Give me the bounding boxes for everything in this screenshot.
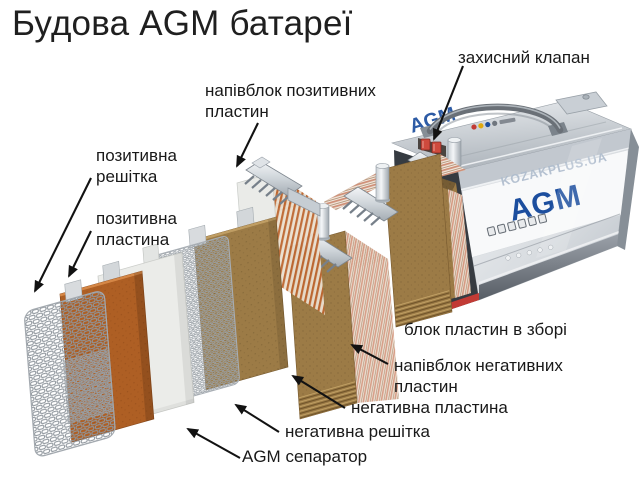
label-negative-grid: негативна решітка xyxy=(285,421,430,442)
label-positive-plate: позитивна пластина xyxy=(96,208,211,250)
label-agm-separator: AGM сепаратор xyxy=(242,446,367,467)
label-negative-halfblock: напівблок негативних пластин xyxy=(394,355,599,397)
page-title: Будова AGM батареї xyxy=(12,4,353,44)
positive-grid xyxy=(23,274,116,458)
label-positive-halfblock: напівблок позитивних пластин xyxy=(205,80,405,122)
screw-icon xyxy=(583,95,589,99)
label-positive-grid: позитивна решітка xyxy=(96,145,211,187)
arrow-negative-grid xyxy=(236,405,279,432)
label-protective-valve: захисний клапан xyxy=(458,47,590,68)
arrow-positive-grid xyxy=(35,178,91,291)
arrow-positive-halfblock xyxy=(237,123,258,166)
agm-battery-diagram: AGM KOZAKPLUS.UA AGM xyxy=(0,0,643,482)
label-assembled-block: блок пластин в зборі xyxy=(404,319,567,340)
label-negative-plate: негативна пластина xyxy=(351,397,508,418)
arrow-agm-separator xyxy=(188,429,240,458)
arrow-positive-plate xyxy=(69,231,91,276)
terminal-post xyxy=(375,163,390,203)
